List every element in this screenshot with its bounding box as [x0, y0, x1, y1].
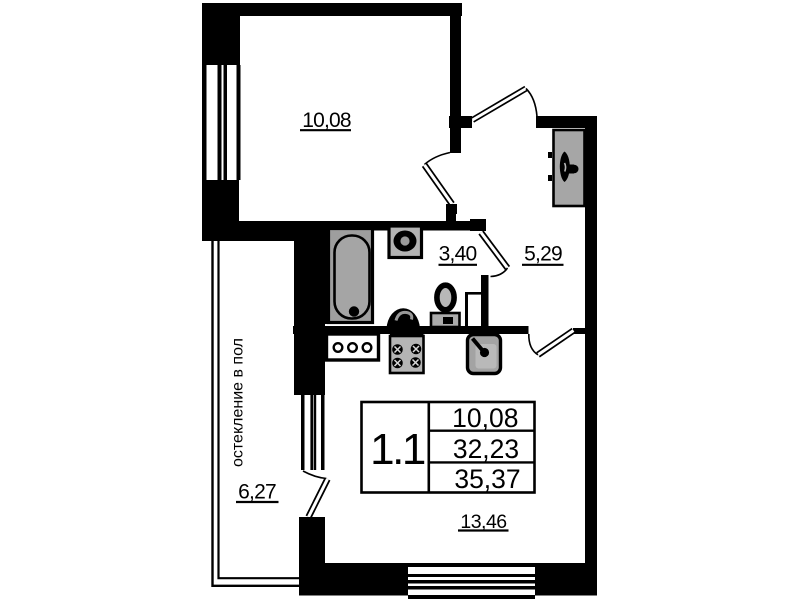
- svg-text:3,40: 3,40: [439, 243, 477, 266]
- svg-text:10,08: 10,08: [452, 403, 518, 433]
- svg-text:остекление в пол: остекление в пол: [230, 338, 247, 467]
- svg-text:6,27: 6,27: [238, 481, 276, 504]
- svg-text:1.1: 1.1: [370, 425, 425, 474]
- svg-text:35,37: 35,37: [454, 464, 520, 494]
- svg-text:10,08: 10,08: [302, 109, 351, 132]
- svg-text:32,23: 32,23: [453, 434, 519, 464]
- svg-text:5,29: 5,29: [524, 243, 562, 266]
